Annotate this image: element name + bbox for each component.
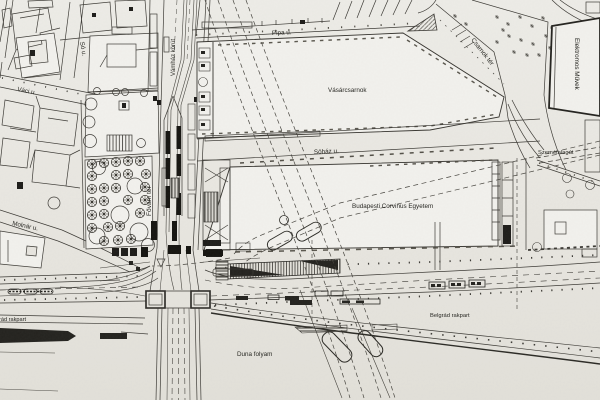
svg-text:Budapesti Corvinus Egyetem: Budapesti Corvinus Egyetem [352,203,433,210]
svg-text:Pipa u.: Pipa u. [272,29,292,37]
svg-text:Szemétalagút: Szemétalagút [538,150,574,156]
svg-text:rád rakpart: rád rakpart [0,317,26,323]
svg-text:Duna folyam: Duna folyam [237,351,272,358]
svg-text:Belgrád rakpart: Belgrád rakpart [430,313,470,319]
svg-text:Sóház u.: Sóház u. [314,148,339,156]
svg-text:Vásárcsarnok: Vásárcsarnok [328,87,367,94]
svg-text:Vámház körút: Vámház körút [171,39,177,76]
svg-text:Elektromos Művek: Elektromos Művek [573,38,580,91]
svg-text:Fővám tér: Fővám tér [146,186,153,216]
